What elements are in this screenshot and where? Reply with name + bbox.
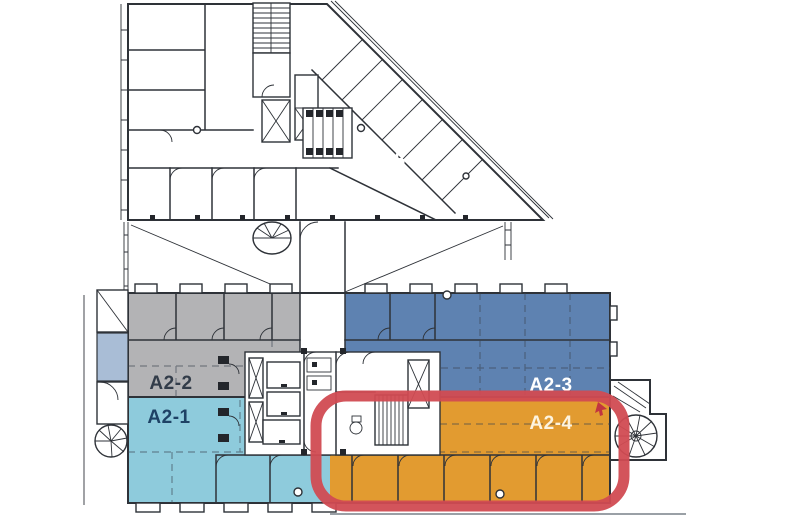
left-spiral-stair <box>95 425 127 457</box>
zone-label-a2-2: A2-2 <box>149 373 192 394</box>
green-toilet-block <box>303 108 352 158</box>
zone-label-a2-5: A2-5 <box>362 151 405 172</box>
zone-a2-5 <box>121 1 553 220</box>
left-annex <box>84 290 128 505</box>
left-balcony <box>97 333 128 381</box>
green-staircase <box>253 3 290 97</box>
zone-label-a2-4: A2-4 <box>529 413 572 434</box>
lower-band <box>128 222 617 503</box>
courtyard-spiral-stair <box>253 222 291 254</box>
zone-label-a2-1: A2-1 <box>147 407 190 428</box>
core-elevators <box>263 362 300 444</box>
floorplan-canvas: A2-5 A2-2 A2-1 A2-3 A2-4 <box>0 0 786 524</box>
floorplan-drawing: A2-5 A2-2 A2-1 A2-3 A2-4 <box>0 0 786 524</box>
core-staircase <box>375 395 408 445</box>
